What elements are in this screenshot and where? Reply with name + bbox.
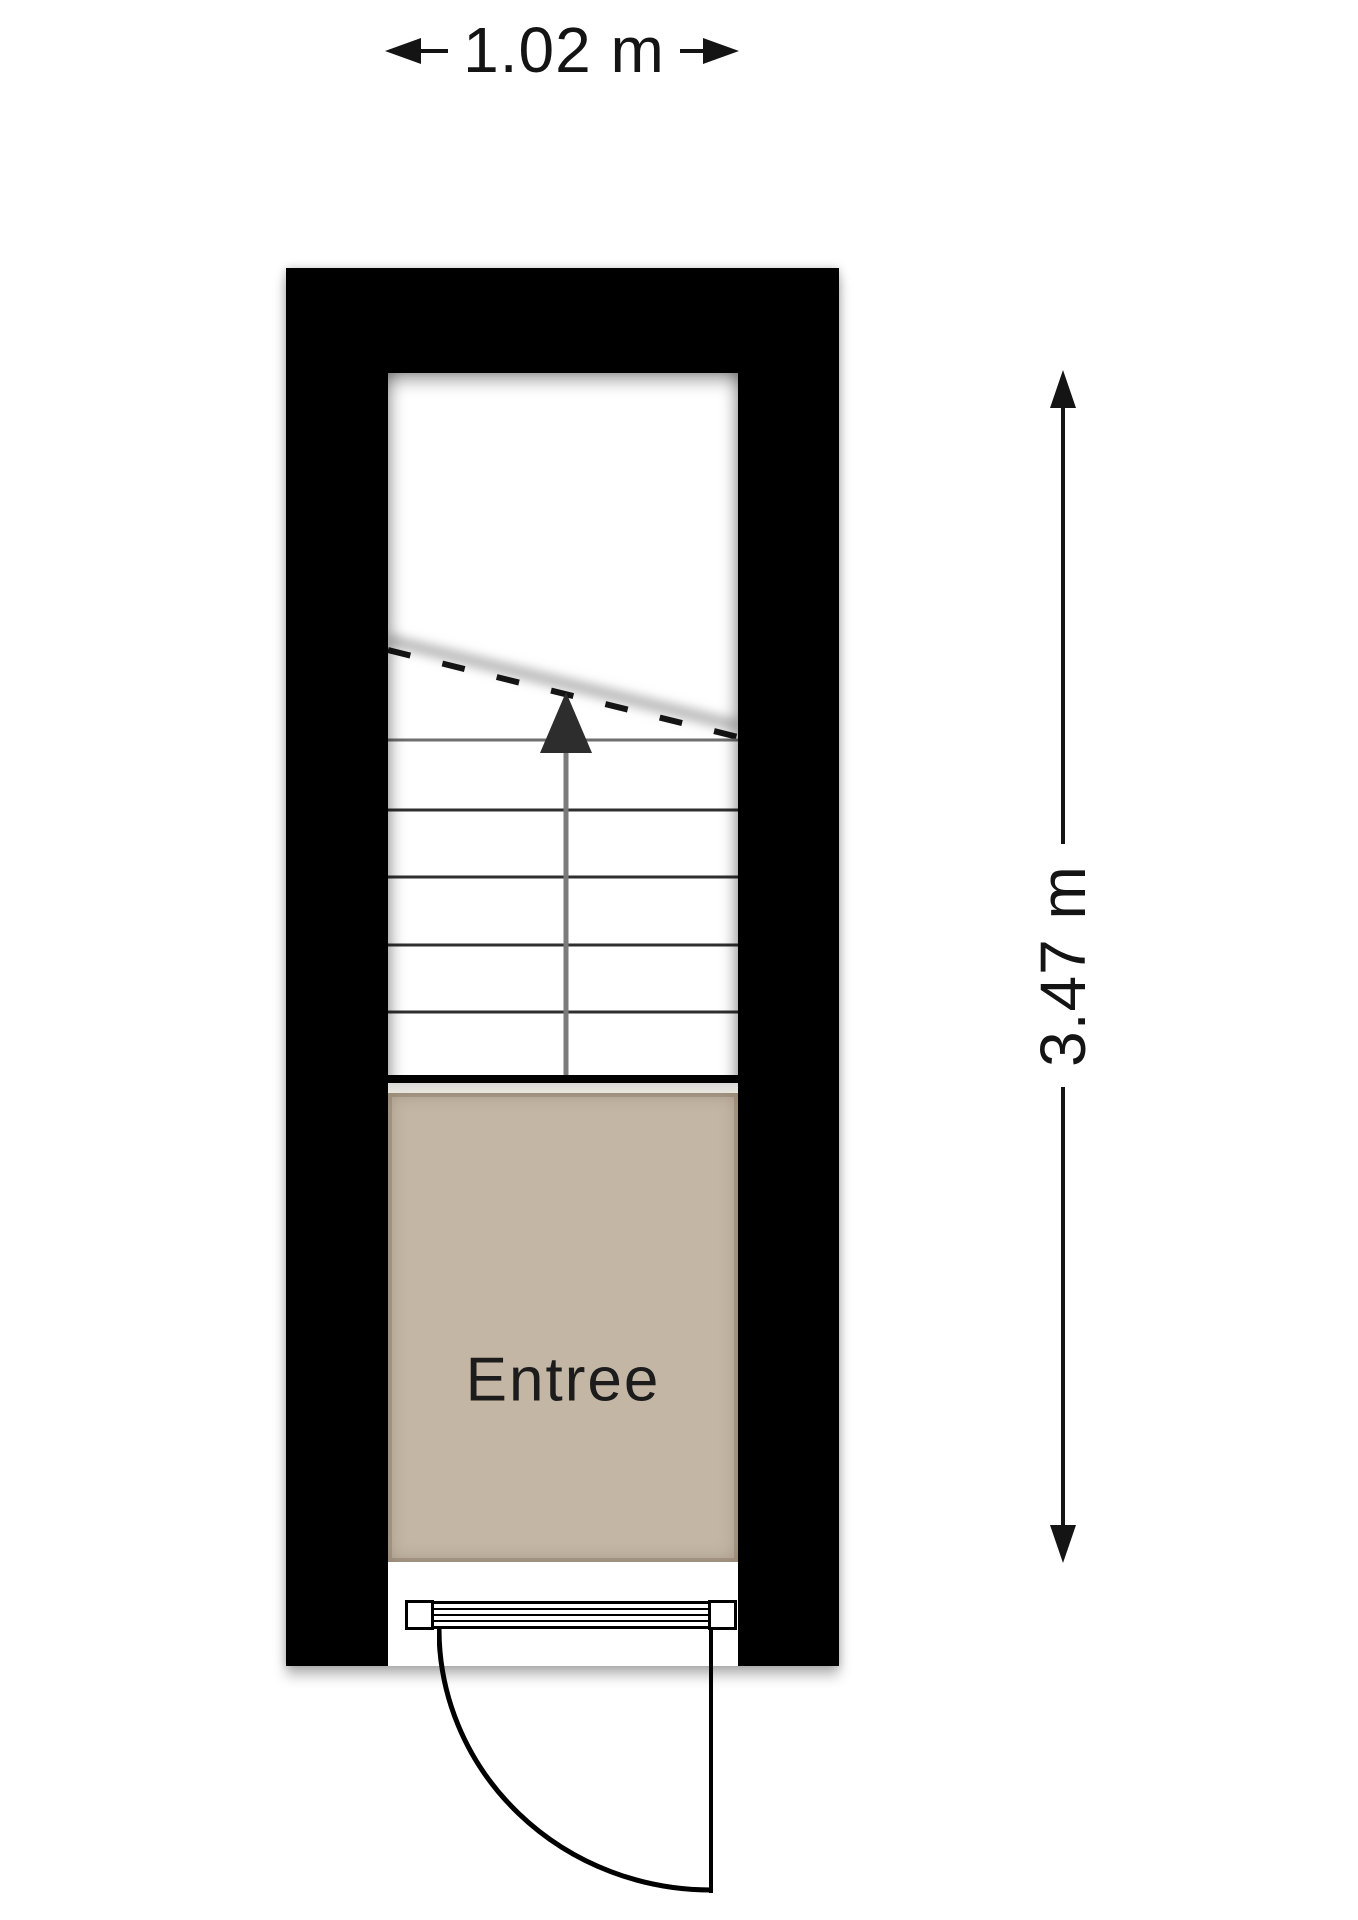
- arrow-down-icon: [1050, 1525, 1076, 1563]
- stair-direction-arrow-head-icon: [540, 692, 592, 753]
- door-threshold-line: [432, 1620, 709, 1622]
- dimension-height-label: 3.47 m: [1026, 865, 1100, 1067]
- floor-edge-strip: [388, 1083, 738, 1093]
- room-label: Entree: [466, 1345, 661, 1416]
- plan-outline: Entree: [286, 268, 839, 1666]
- door-threshold-line: [432, 1608, 709, 1610]
- stair-bottom-edge: [388, 1075, 738, 1083]
- wall-right: [738, 268, 839, 1666]
- door-post-left: [405, 1600, 434, 1630]
- floorplan-canvas: 1.02 m: [0, 0, 1358, 1920]
- room-entree-floor: Entree: [388, 1093, 738, 1562]
- dimension-width-tail-right: [680, 49, 705, 53]
- staircase: [388, 373, 738, 1083]
- dimension-width-label: 1.02 m: [463, 13, 665, 87]
- door-threshold-line: [432, 1614, 709, 1616]
- arrow-right-icon: [703, 38, 739, 64]
- plan-interior: Entree: [388, 373, 738, 1666]
- arrow-left-icon: [385, 38, 421, 64]
- door-swing-arc: [437, 1626, 715, 1896]
- dimension-width-tail-left: [419, 49, 448, 53]
- arrow-up-icon: [1050, 370, 1076, 408]
- stair-direction-arrow-shaft: [564, 750, 569, 1075]
- dimension-height-tail-top: [1061, 406, 1065, 844]
- dimension-height-tail-bottom: [1061, 1087, 1065, 1527]
- door-threshold: [405, 1601, 736, 1629]
- wall-left: [286, 268, 388, 1666]
